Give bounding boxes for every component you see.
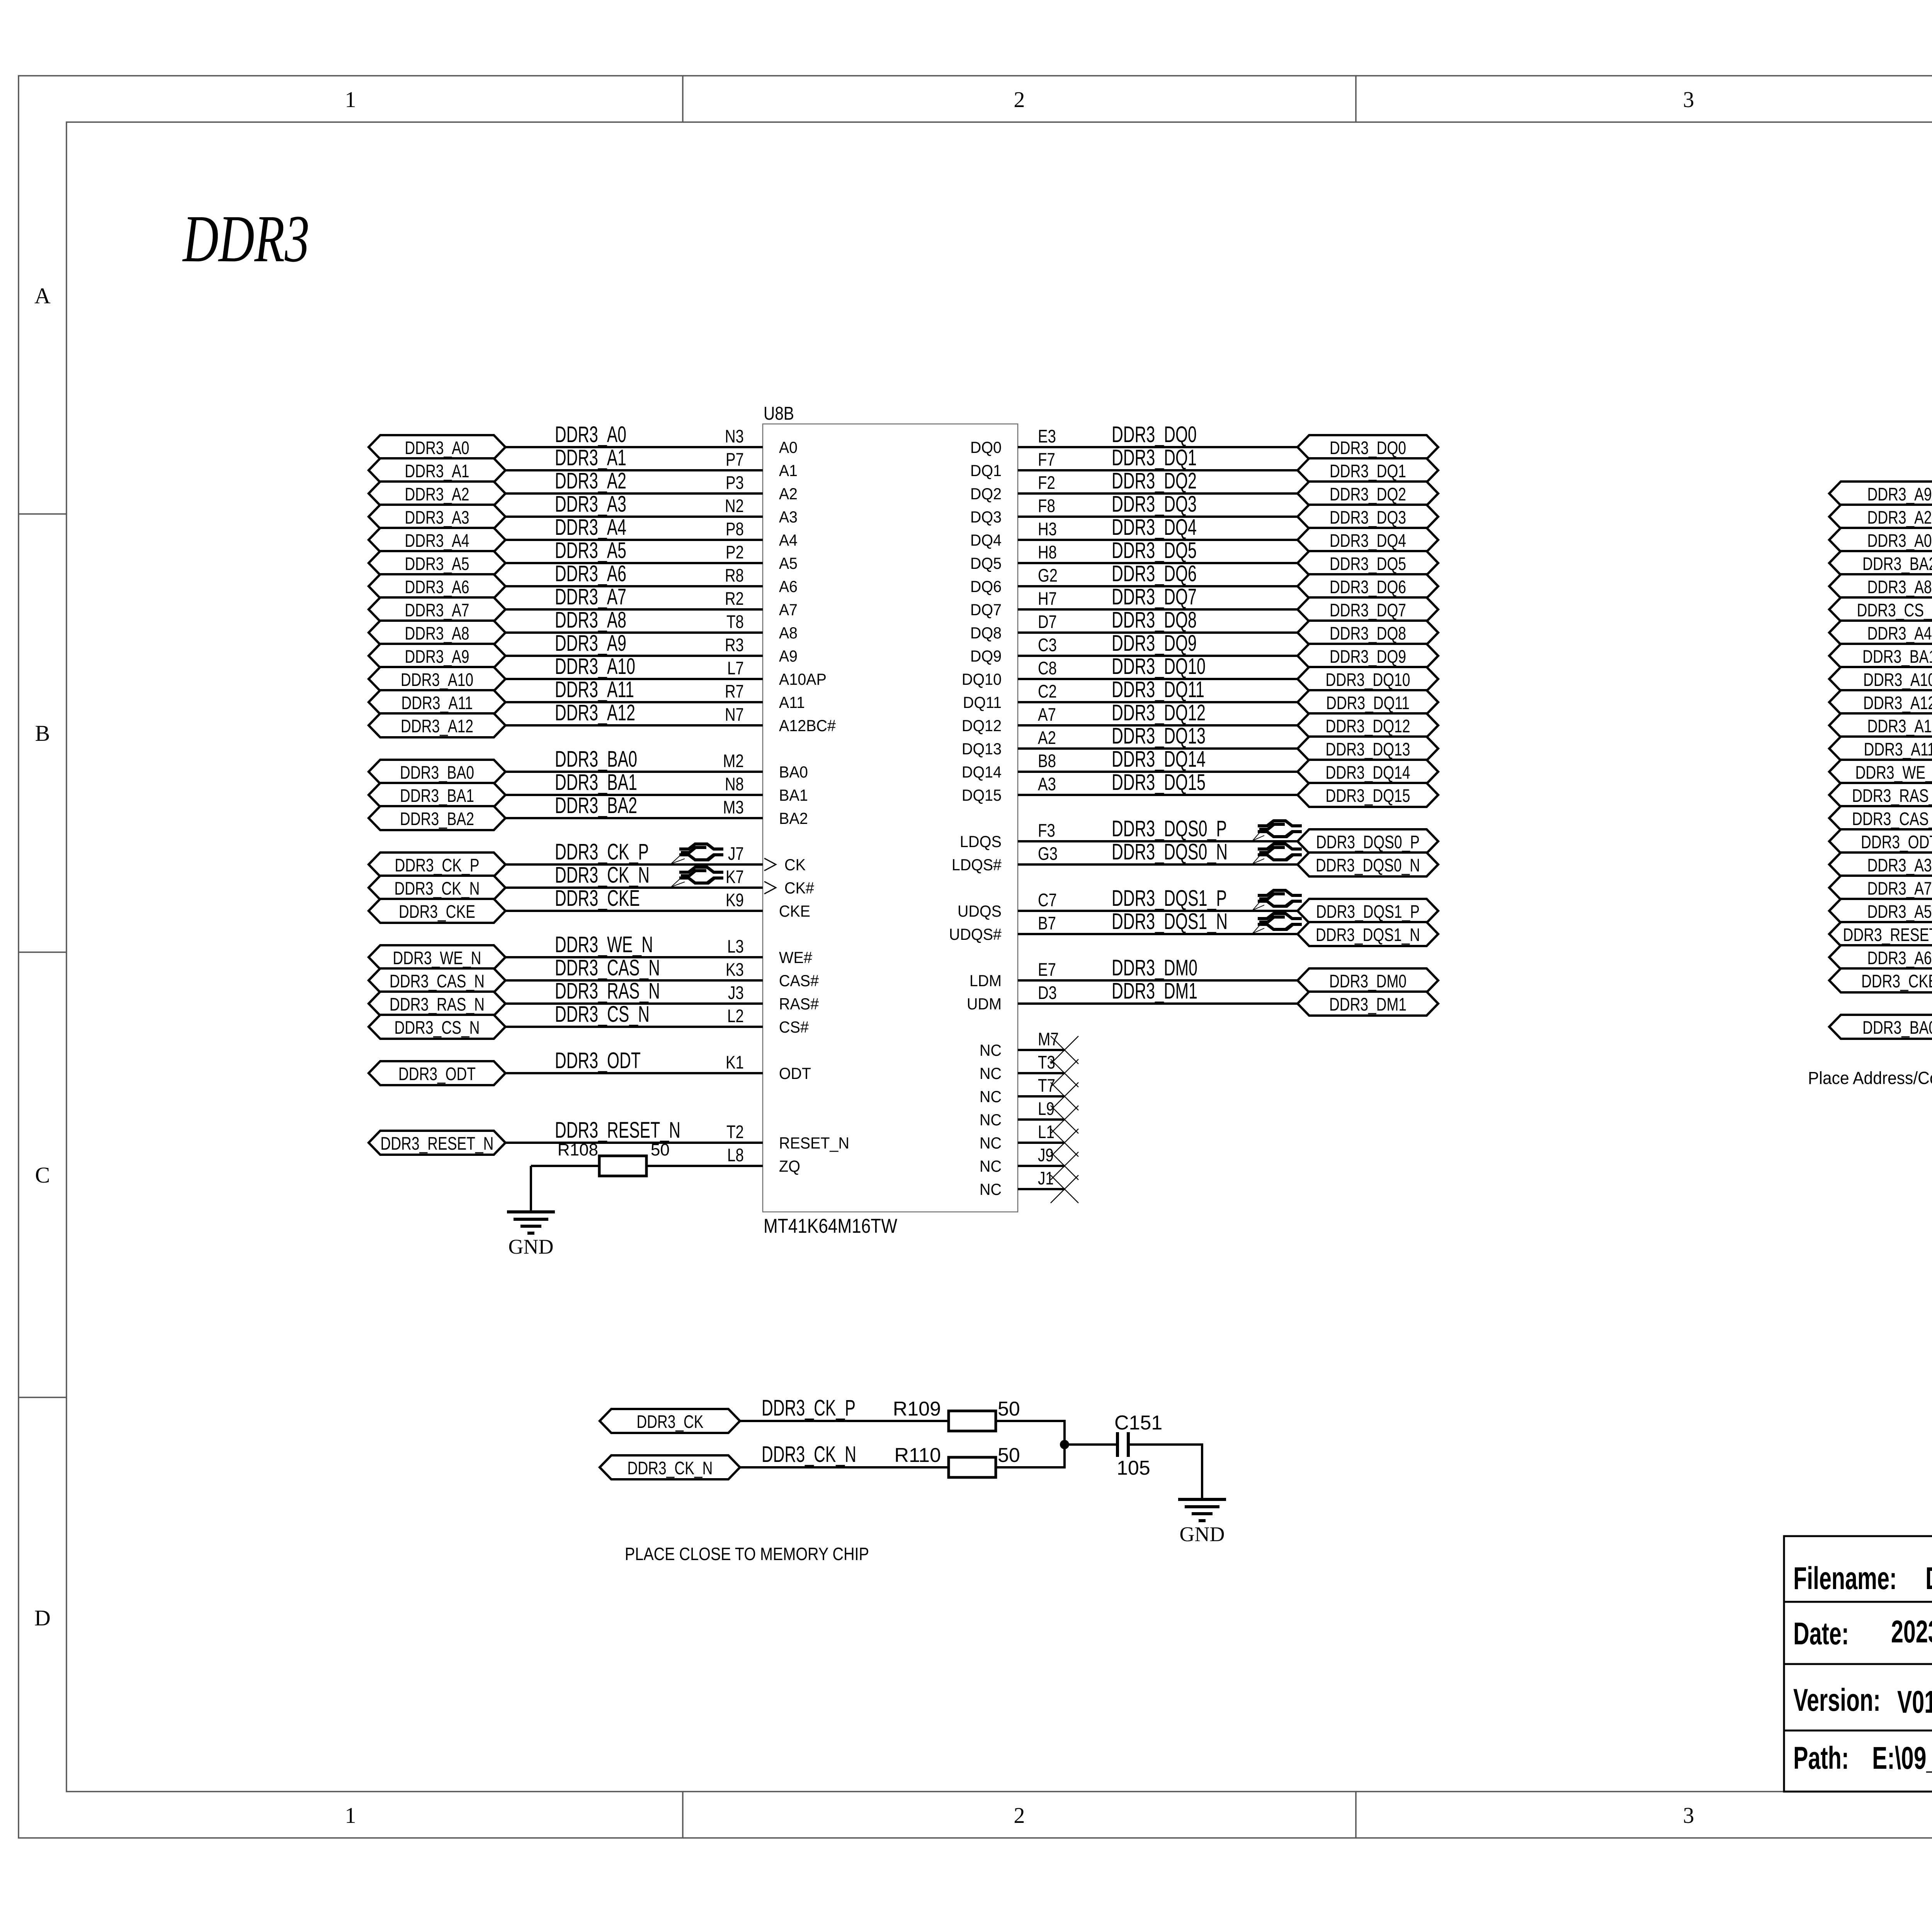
svg-text:DDR3_A2: DDR3_A2	[405, 484, 469, 504]
svg-text:L8: L8	[727, 1145, 744, 1165]
svg-text:Filename:: Filename:	[1793, 1561, 1897, 1596]
svg-text:J7: J7	[728, 843, 744, 864]
svg-text:DDR3_DQ7: DDR3_DQ7	[1330, 600, 1406, 620]
svg-text:DDR3_BA1: DDR3_BA1	[1862, 646, 1932, 667]
svg-text:R8: R8	[725, 565, 744, 585]
svg-text:Place Address/Control Terminat: Place Address/Control Termination Resist…	[1808, 1068, 1932, 1088]
svg-text:DDR3_BA0: DDR3_BA0	[400, 762, 474, 783]
svg-text:DDR3_DQ13: DDR3_DQ13	[1326, 739, 1410, 759]
svg-text:L3: L3	[727, 936, 744, 956]
svg-text:DDR3_DQ0: DDR3_DQ0	[1112, 422, 1197, 447]
svg-text:DDR3_CK_P: DDR3_CK_P	[395, 855, 480, 875]
svg-text:UDQS#: UDQS#	[949, 925, 1002, 943]
svg-text:P2: P2	[726, 542, 744, 562]
svg-text:DDR3_A8: DDR3_A8	[405, 623, 469, 643]
svg-text:DDR3_CK_P: DDR3_CK_P	[762, 1395, 855, 1421]
svg-text:BA1: BA1	[779, 786, 808, 804]
svg-text:DDR3_RAS_N: DDR3_RAS_N	[555, 978, 660, 1004]
svg-text:DDR3_CAS_N: DDR3_CAS_N	[1852, 808, 1932, 829]
svg-text:DDR3_A12: DDR3_A12	[555, 700, 635, 725]
svg-text:H3: H3	[1038, 519, 1057, 539]
svg-text:DDR3_A10: DDR3_A10	[401, 669, 473, 690]
svg-text:DQ1: DQ1	[970, 461, 1002, 480]
svg-text:GND: GND	[1180, 1523, 1225, 1546]
svg-text:DDR3_A2: DDR3_A2	[555, 468, 626, 493]
svg-text:DDR3_DM0: DDR3_DM0	[1329, 971, 1406, 991]
svg-text:BA0: BA0	[779, 763, 808, 781]
svg-text:N2: N2	[725, 495, 744, 516]
svg-text:T3: T3	[1038, 1052, 1055, 1072]
svg-text:N3: N3	[725, 426, 744, 446]
svg-text:A6: A6	[779, 577, 798, 596]
svg-text:K1: K1	[726, 1052, 744, 1072]
svg-text:DDR3_DQ7: DDR3_DQ7	[1112, 584, 1197, 609]
svg-text:DDR3_A0: DDR3_A0	[555, 422, 626, 447]
svg-text:A4: A4	[779, 531, 798, 549]
svg-text:DDR3_CK_N: DDR3_CK_N	[628, 1458, 713, 1478]
svg-text:DDR3_DQ0: DDR3_DQ0	[1330, 437, 1406, 458]
svg-text:DQ13: DQ13	[962, 740, 1002, 758]
svg-text:DDR3_A11: DDR3_A11	[1864, 739, 1932, 759]
svg-text:DDR3_A1: DDR3_A1	[405, 461, 469, 481]
svg-text:DQ11: DQ11	[963, 693, 1002, 711]
svg-text:N7: N7	[725, 704, 744, 725]
svg-text:DDR3_DQ8: DDR3_DQ8	[1112, 607, 1197, 633]
svg-text:N8: N8	[725, 774, 744, 794]
svg-text:DDR3_A5: DDR3_A5	[555, 538, 626, 563]
svg-text:Path:: Path:	[1793, 1741, 1849, 1776]
svg-text:A: A	[34, 283, 51, 308]
svg-text:DQ0: DQ0	[970, 438, 1002, 456]
svg-text:NC: NC	[980, 1041, 1002, 1059]
svg-text:A1: A1	[779, 461, 798, 480]
svg-text:DQ15: DQ15	[962, 786, 1002, 804]
svg-text:H7: H7	[1038, 588, 1057, 609]
svg-text:M3: M3	[723, 797, 744, 817]
svg-text:LDQS#: LDQS#	[952, 856, 1002, 874]
svg-text:R110: R110	[895, 1444, 941, 1467]
svg-text:UDM: UDM	[967, 995, 1002, 1013]
svg-text:DDR3_WE_N: DDR3_WE_N	[1855, 762, 1932, 783]
svg-text:CK: CK	[784, 856, 806, 874]
svg-text:DQ12: DQ12	[962, 716, 1002, 735]
svg-text:E7: E7	[1038, 959, 1056, 980]
svg-text:DDR3_CK_N: DDR3_CK_N	[555, 863, 650, 888]
svg-text:2023/8/8: 2023/8/8	[1891, 1614, 1932, 1649]
svg-text:105: 105	[1117, 1457, 1150, 1479]
svg-text:M2: M2	[723, 750, 744, 771]
svg-text:DDR3_RESET_N: DDR3_RESET_N	[1843, 924, 1932, 945]
svg-text:DDR3_DQ13: DDR3_DQ13	[1112, 723, 1206, 749]
svg-text:DDR3_DQ14: DDR3_DQ14	[1112, 747, 1206, 772]
svg-text:DDR3_DM1: DDR3_DM1	[1112, 978, 1197, 1004]
svg-text:C: C	[35, 1162, 50, 1188]
svg-text:DQ6: DQ6	[970, 577, 1002, 596]
svg-text:DDR3_WE_N: DDR3_WE_N	[393, 948, 481, 968]
svg-text:T2: T2	[726, 1121, 744, 1142]
svg-text:F7: F7	[1038, 449, 1055, 470]
svg-text:L2: L2	[727, 1006, 744, 1026]
svg-text:A3: A3	[1038, 774, 1056, 794]
svg-text:A10AP: A10AP	[779, 670, 827, 688]
svg-text:J9: J9	[1038, 1145, 1054, 1165]
svg-text:A2: A2	[779, 485, 798, 503]
svg-text:DDR3_A3: DDR3_A3	[405, 507, 469, 527]
svg-text:DDR3_DQ12: DDR3_DQ12	[1326, 716, 1410, 736]
svg-text:1: 1	[345, 1803, 356, 1828]
svg-text:DDR3_A5: DDR3_A5	[1867, 901, 1932, 922]
svg-text:50: 50	[998, 1444, 1020, 1467]
svg-text:C3: C3	[1038, 635, 1057, 655]
svg-text:DDR3_DQ3: DDR3_DQ3	[1112, 492, 1197, 517]
svg-text:A7: A7	[779, 601, 798, 619]
svg-text:DDR3_A0: DDR3_A0	[405, 437, 469, 458]
svg-text:DQ7: DQ7	[970, 601, 1002, 619]
svg-text:B: B	[35, 721, 50, 746]
svg-text:R2: R2	[725, 588, 744, 609]
svg-text:DDR3_DQ15: DDR3_DQ15	[1326, 785, 1410, 806]
svg-text:DDR3_CKE: DDR3_CKE	[1861, 971, 1932, 991]
svg-text:DDR3_A6: DDR3_A6	[405, 577, 469, 597]
svg-text:DDR3_DQS1_P: DDR3_DQS1_P	[1316, 901, 1420, 922]
svg-text:3: 3	[1683, 1803, 1694, 1828]
svg-text:DDR3_A7: DDR3_A7	[405, 600, 469, 620]
svg-text:C8: C8	[1038, 658, 1057, 678]
svg-text:Version:: Version:	[1793, 1683, 1881, 1718]
svg-text:BA2: BA2	[779, 809, 808, 827]
svg-text:DDR3_DQ2: DDR3_DQ2	[1112, 468, 1197, 493]
svg-text:2: 2	[1014, 87, 1025, 112]
svg-text:DDR3_A8: DDR3_A8	[555, 607, 626, 633]
svg-text:DQ5: DQ5	[970, 554, 1002, 572]
svg-text:1: 1	[345, 87, 356, 112]
svg-text:DDR3_BA2: DDR3_BA2	[400, 808, 474, 829]
svg-text:DDR3_A12: DDR3_A12	[1863, 693, 1932, 713]
svg-text:B7: B7	[1038, 913, 1056, 933]
svg-text:DDR3_DQS1_N: DDR3_DQS1_N	[1112, 909, 1228, 934]
svg-text:WE#: WE#	[779, 948, 813, 967]
svg-text:D7: D7	[1038, 611, 1057, 632]
svg-text:DDR3_DQ6: DDR3_DQ6	[1330, 577, 1406, 597]
svg-text:NC: NC	[980, 1180, 1002, 1198]
svg-text:DDR3_DQ11: DDR3_DQ11	[1326, 693, 1410, 713]
svg-text:DDR3_ODT: DDR3_ODT	[555, 1048, 641, 1073]
svg-text:U8B: U8B	[764, 403, 794, 424]
svg-text:DDR3_A6: DDR3_A6	[555, 561, 626, 586]
svg-text:A11: A11	[779, 693, 805, 711]
svg-text:DDR3_BA1: DDR3_BA1	[555, 770, 637, 795]
svg-text:L1: L1	[1038, 1121, 1054, 1142]
svg-text:A8: A8	[779, 624, 798, 642]
svg-text:DDR3_A9: DDR3_A9	[405, 646, 469, 667]
svg-text:DDR3_CKE: DDR3_CKE	[555, 886, 640, 911]
svg-text:A9: A9	[779, 647, 798, 665]
svg-text:L9: L9	[1038, 1098, 1054, 1119]
svg-text:NC: NC	[980, 1087, 1002, 1106]
svg-text:ZQ: ZQ	[779, 1157, 800, 1175]
svg-text:DDR3_DQ5: DDR3_DQ5	[1112, 538, 1197, 563]
svg-text:DDR3_A11: DDR3_A11	[555, 677, 634, 702]
svg-text:DDR3_BA2: DDR3_BA2	[555, 793, 637, 818]
svg-text:P3: P3	[726, 472, 744, 493]
svg-text:DDR3_A1: DDR3_A1	[1867, 716, 1932, 736]
svg-text:DDR3_DQS0_P: DDR3_DQS0_P	[1316, 832, 1420, 852]
svg-text:DDR3_DQS1_P: DDR3_DQS1_P	[1112, 886, 1227, 911]
svg-text:NC: NC	[980, 1064, 1002, 1082]
svg-text:R109: R109	[893, 1398, 941, 1420]
svg-text:DDR3_A2: DDR3_A2	[1867, 507, 1932, 527]
svg-text:CK#: CK#	[784, 879, 815, 897]
svg-text:DDR3: DDR3	[182, 201, 310, 276]
svg-text:DDR3_DQS1_N: DDR3_DQS1_N	[1316, 924, 1420, 945]
svg-text:DQ8: DQ8	[970, 624, 1002, 642]
svg-text:DDR3_CK_N: DDR3_CK_N	[395, 878, 480, 898]
svg-text:DDR3_DQ9: DDR3_DQ9	[1330, 646, 1406, 667]
svg-text:DDR3_A12: DDR3_A12	[401, 716, 473, 736]
svg-text:DDR3_A9: DDR3_A9	[1867, 484, 1932, 504]
svg-text:PLACE CLOSE TO MEMORY CHIP: PLACE CLOSE TO MEMORY CHIP	[625, 1544, 869, 1564]
svg-text:T7: T7	[1038, 1075, 1055, 1096]
svg-text:DDR3_CK: DDR3_CK	[637, 1411, 704, 1432]
svg-text:D3: D3	[1038, 982, 1057, 1003]
svg-text:Date:: Date:	[1793, 1616, 1849, 1651]
svg-text:DDR3_2.SchDoc: DDR3_2.SchDoc	[1925, 1561, 1932, 1596]
svg-text:NC: NC	[980, 1134, 1002, 1152]
svg-text:DDR3_DQ5: DDR3_DQ5	[1330, 553, 1406, 574]
svg-text:P8: P8	[726, 519, 744, 539]
svg-text:DDR3_DQ14: DDR3_DQ14	[1326, 762, 1410, 783]
svg-text:DDR3_DM1: DDR3_DM1	[1329, 994, 1406, 1014]
svg-text:DDR3_ODT: DDR3_ODT	[398, 1063, 476, 1084]
svg-text:RAS#: RAS#	[779, 995, 819, 1013]
svg-text:50: 50	[651, 1140, 670, 1159]
svg-text:V01: V01	[1897, 1685, 1932, 1720]
svg-text:DDR3_DQ10: DDR3_DQ10	[1112, 654, 1206, 679]
svg-text:DDR3_CS_N: DDR3_CS_N	[395, 1017, 480, 1038]
svg-text:G2: G2	[1038, 565, 1058, 585]
svg-text:GND: GND	[509, 1235, 554, 1258]
svg-text:UDQS: UDQS	[957, 902, 1002, 920]
svg-text:DDR3_A7: DDR3_A7	[1867, 878, 1932, 898]
svg-text:J1: J1	[1038, 1168, 1054, 1188]
svg-text:DDR3_DQ10: DDR3_DQ10	[1326, 669, 1410, 690]
svg-text:DDR3_A7: DDR3_A7	[555, 584, 626, 609]
svg-text:DDR3_A3: DDR3_A3	[555, 492, 626, 517]
svg-text:C151: C151	[1114, 1412, 1162, 1434]
svg-text:DDR3_A10: DDR3_A10	[1863, 669, 1932, 690]
svg-text:DDR3_A8: DDR3_A8	[1867, 577, 1932, 597]
svg-text:E:\09_my_project\PCB\05_ECP3\V: E:\09_my_project\PCB\05_ECP3\V02\ECP3_70…	[1872, 1741, 1932, 1776]
svg-text:A3: A3	[779, 508, 798, 526]
svg-text:H8: H8	[1038, 542, 1057, 562]
svg-text:DDR3_CAS_N: DDR3_CAS_N	[555, 955, 660, 980]
svg-text:DDR3_RAS_N: DDR3_RAS_N	[1852, 785, 1932, 806]
svg-text:DDR3_BA2: DDR3_BA2	[1862, 553, 1932, 574]
svg-text:K9: K9	[726, 890, 744, 910]
svg-text:C7: C7	[1038, 890, 1057, 910]
svg-text:DDR3_DQ1: DDR3_DQ1	[1330, 461, 1406, 481]
svg-text:DDR3_A4: DDR3_A4	[405, 530, 469, 551]
svg-text:D: D	[34, 1605, 51, 1630]
svg-text:DDR3_A10: DDR3_A10	[555, 654, 635, 679]
svg-text:DDR3_RESET_N: DDR3_RESET_N	[381, 1133, 494, 1154]
svg-text:DDR3_DQ9: DDR3_DQ9	[1112, 631, 1197, 656]
svg-text:NC: NC	[980, 1111, 1002, 1129]
svg-text:DDR3_DQ6: DDR3_DQ6	[1112, 561, 1197, 586]
svg-text:DQ9: DQ9	[970, 647, 1002, 665]
svg-text:3: 3	[1683, 87, 1694, 112]
svg-text:DDR3_DM0: DDR3_DM0	[1112, 955, 1197, 980]
svg-text:DDR3_RESET_N: DDR3_RESET_N	[555, 1118, 680, 1143]
svg-text:DDR3_A9: DDR3_A9	[555, 631, 626, 656]
svg-text:DDR3_DQ8: DDR3_DQ8	[1330, 623, 1406, 643]
svg-text:B8: B8	[1038, 750, 1056, 771]
svg-text:A7: A7	[1038, 704, 1056, 725]
svg-text:DDR3_CK_N: DDR3_CK_N	[762, 1442, 856, 1467]
svg-text:DDR3_A3: DDR3_A3	[1867, 855, 1932, 875]
svg-text:RESET_N: RESET_N	[779, 1134, 849, 1152]
svg-text:K7: K7	[726, 866, 744, 887]
svg-text:A0: A0	[779, 438, 798, 456]
svg-text:DQ10: DQ10	[962, 670, 1002, 688]
svg-text:J3: J3	[728, 982, 744, 1003]
svg-text:DDR3_A1: DDR3_A1	[555, 445, 626, 470]
svg-text:DDR3_DQ2: DDR3_DQ2	[1330, 484, 1406, 504]
svg-text:DDR3_DQ4: DDR3_DQ4	[1112, 515, 1197, 540]
svg-text:DDR3_DQS0_P: DDR3_DQS0_P	[1112, 816, 1227, 841]
svg-text:DDR3_A4: DDR3_A4	[1867, 623, 1932, 643]
svg-text:DDR3_DQS0_N: DDR3_DQS0_N	[1316, 855, 1420, 875]
svg-text:DDR3_BA0: DDR3_BA0	[555, 747, 637, 772]
svg-text:DQ2: DQ2	[970, 485, 1002, 503]
svg-text:DDR3_ODT: DDR3_ODT	[1861, 832, 1932, 852]
svg-text:DDR3_DQ11: DDR3_DQ11	[1112, 677, 1204, 702]
svg-text:DDR3_WE_N: DDR3_WE_N	[555, 932, 653, 957]
svg-text:CS#: CS#	[779, 1018, 809, 1036]
svg-text:DDR3_CS_N: DDR3_CS_N	[1857, 600, 1932, 620]
svg-text:F3: F3	[1038, 820, 1055, 841]
svg-text:P7: P7	[726, 449, 744, 470]
svg-text:M7: M7	[1038, 1029, 1059, 1049]
svg-text:F2: F2	[1038, 472, 1055, 493]
svg-text:DDR3_A4: DDR3_A4	[555, 515, 626, 540]
svg-text:DDR3_BA0: DDR3_BA0	[1862, 1017, 1932, 1038]
svg-text:MT41K64M16TW: MT41K64M16TW	[764, 1215, 897, 1237]
svg-text:A2: A2	[1038, 727, 1056, 748]
svg-text:G3: G3	[1038, 843, 1058, 864]
svg-text:R3: R3	[725, 635, 744, 655]
svg-text:C2: C2	[1038, 681, 1057, 701]
svg-text:DDR3_A11: DDR3_A11	[401, 693, 473, 713]
svg-text:DDR3_DQ12: DDR3_DQ12	[1112, 700, 1206, 725]
svg-text:NC: NC	[980, 1157, 1002, 1175]
svg-text:DDR3_CAS_N: DDR3_CAS_N	[389, 971, 485, 991]
svg-text:DDR3_DQ15: DDR3_DQ15	[1112, 770, 1206, 795]
svg-text:A12BC#: A12BC#	[779, 716, 836, 735]
svg-text:DDR3_DQ4: DDR3_DQ4	[1330, 530, 1406, 551]
svg-text:DQ14: DQ14	[962, 763, 1002, 781]
svg-text:L7: L7	[727, 658, 744, 678]
svg-text:R108: R108	[558, 1140, 598, 1159]
svg-text:T8: T8	[726, 611, 744, 632]
svg-text:DDR3_CK_P: DDR3_CK_P	[555, 839, 649, 864]
svg-text:K3: K3	[726, 959, 744, 980]
svg-text:R7: R7	[725, 681, 744, 701]
svg-text:DDR3_CS_N: DDR3_CS_N	[555, 1002, 650, 1027]
svg-text:DDR3_A5: DDR3_A5	[405, 553, 469, 574]
svg-text:CKE: CKE	[779, 902, 810, 920]
svg-text:E3: E3	[1038, 426, 1056, 446]
svg-text:DDR3_BA1: DDR3_BA1	[400, 785, 474, 806]
svg-text:DDR3_DQ1: DDR3_DQ1	[1112, 445, 1197, 470]
svg-text:DDR3_RAS_N: DDR3_RAS_N	[389, 994, 485, 1014]
svg-text:DDR3_A6: DDR3_A6	[1867, 948, 1932, 968]
svg-text:DDR3_DQ3: DDR3_DQ3	[1330, 507, 1406, 527]
svg-text:DDR3_CKE: DDR3_CKE	[399, 901, 475, 922]
svg-text:DQ3: DQ3	[970, 508, 1002, 526]
svg-text:LDM: LDM	[969, 972, 1002, 990]
svg-text:ODT: ODT	[779, 1064, 811, 1082]
svg-text:DDR3_DQS0_N: DDR3_DQS0_N	[1112, 839, 1228, 864]
svg-text:A5: A5	[779, 554, 798, 572]
svg-text:DDR3_A0: DDR3_A0	[1867, 530, 1932, 551]
svg-text:2: 2	[1014, 1803, 1025, 1828]
svg-text:F8: F8	[1038, 495, 1055, 516]
svg-text:LDQS: LDQS	[960, 832, 1002, 851]
svg-text:DQ4: DQ4	[970, 531, 1002, 549]
svg-text:CAS#: CAS#	[779, 972, 819, 990]
svg-text:50: 50	[998, 1398, 1020, 1420]
